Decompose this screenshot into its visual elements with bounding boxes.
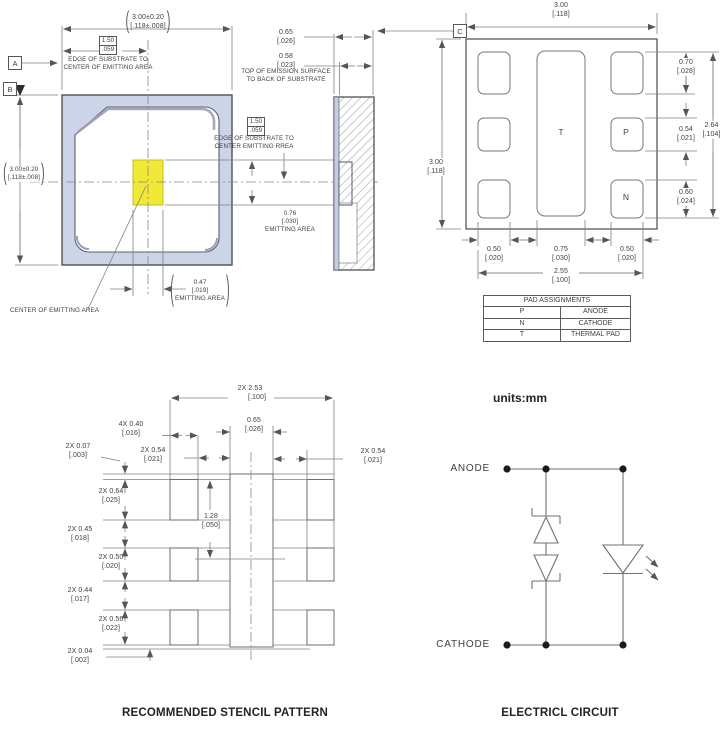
dim-stencil-offset-bottom: 2X 0.04[.002] xyxy=(54,647,106,665)
dim-emitting-height: 0.76[.030]EMITTING AREA xyxy=(262,210,318,235)
note-emission-surface: TOP OF EMISSION SURFACETO BACK OF SUBSTR… xyxy=(234,68,338,84)
stencil-aperture xyxy=(307,610,334,645)
dim-bottom-height: 3.00[.118] xyxy=(417,158,455,176)
datum-c: C xyxy=(453,24,467,38)
pad-assignments-table: PAD ASSIGNMENTS P ANODE N CATHODE T THER… xyxy=(483,295,631,342)
rails xyxy=(507,469,623,645)
dim-stencil-gap-left: 2X 0.54[.021] xyxy=(122,446,184,464)
dim-stencil-center-pitch: 1.28[.050] xyxy=(190,512,232,530)
caption-electrical-circuit: ELECTRICL CIRCUIT xyxy=(470,707,650,719)
caption-stencil-pattern: RECOMMENDED STENCIL PATTERN xyxy=(75,707,375,719)
anode-label: ANODE xyxy=(436,463,490,474)
dim-stencil-row3-height: 2X 0.56[.022] xyxy=(84,615,138,633)
stencil-aperture xyxy=(170,548,198,581)
dim-stencil-row2-height: 2X 0.50[.020] xyxy=(84,553,138,571)
dim-pad-center-width: 0.75[.030] xyxy=(544,245,578,263)
pad-left-top xyxy=(478,52,510,94)
junction-dots xyxy=(503,465,626,648)
datum-a: A xyxy=(8,56,22,70)
thermal-pad-label: T xyxy=(555,127,567,137)
dim-stencil-overall: 2X 2.53[.100] xyxy=(222,384,278,402)
dim-stencil-aperture-width: 4X 0.40[.016] xyxy=(100,420,162,438)
table-row: T THERMAL PAD xyxy=(484,330,631,341)
datasheet-drawing-page: .g{stroke:#54565b;stroke-width:1.3;fill:… xyxy=(0,0,727,731)
datum-b: B xyxy=(3,82,17,96)
note-edge-to-center-side: EDGE OF SUBSTRATE TOCENTER EMITTING RREA xyxy=(206,135,302,151)
light-emission-arrow xyxy=(646,556,658,567)
light-emission-arrow xyxy=(646,569,658,580)
dim-pad-mid-height: 0.54[.021] xyxy=(669,125,703,143)
dim-edge-to-center-boxed-side: 1.50 .059 xyxy=(240,117,272,136)
dim-pad-bottom-height: 0.60[.024] xyxy=(669,188,703,206)
dim-pad-right-width: 0.50[.020] xyxy=(610,245,644,263)
led-symbol xyxy=(603,545,658,580)
dim-package-height: ( 3.00±0.20[.118±.008] ) xyxy=(0,166,48,182)
units-note: units:mm xyxy=(470,391,570,405)
dim-edge-to-center-boxed: 1.50 .059 xyxy=(92,36,124,55)
cathode-label: CATHODE xyxy=(428,639,490,650)
dim-emitting-width: ( 0.47[.019]EMITTING AREA ) xyxy=(166,279,234,304)
stencil-aperture xyxy=(307,548,334,581)
anode-pad-label: P xyxy=(620,127,632,137)
dim-package-width: ( 3.00±0.20[.118±.008] ) xyxy=(112,13,184,31)
table-title: PAD ASSIGNMENTS xyxy=(484,296,631,307)
dim-pad-top-height: 0.70[.028] xyxy=(669,58,703,76)
dim-stencil-gap1: 2X 0.45[.018] xyxy=(54,525,106,543)
dim-stencil-gap2: 2X 0.44[.017] xyxy=(54,586,106,604)
table-row: P ANODE xyxy=(484,307,631,318)
dim-stencil-center-width: 0.65[.026] xyxy=(236,416,272,434)
stencil-aperture xyxy=(307,480,334,521)
dim-thickness: 0.65[.026] xyxy=(268,28,304,46)
table-row: N CATHODE xyxy=(484,318,631,329)
pad-left-mid xyxy=(478,118,510,151)
dim-stencil-row1-height: 2X 0.64[.025] xyxy=(84,487,138,505)
stencil-aperture xyxy=(170,610,198,645)
note-edge-to-center: EDGE OF SUBSTRATE TOCENTER OF EMITTING A… xyxy=(48,56,168,72)
dim-stencil-gap-right: 2X 0.54[.021] xyxy=(344,447,402,465)
cavity-section xyxy=(339,203,357,263)
dim-stencil-offset-top: 2X 0.07[.003] xyxy=(54,442,102,460)
cathode-pad-label: N xyxy=(620,192,632,202)
emission-surface-strip xyxy=(334,97,339,270)
pad-right-top xyxy=(611,52,643,94)
note-center-of-emitting-area: CENTER OF EMITTING AREA xyxy=(10,307,100,315)
dim-pad-left-width: 0.50[.020] xyxy=(477,245,511,263)
stencil-center-aperture xyxy=(230,474,273,647)
dim-pad-span-horizontal: 2.55[.100] xyxy=(543,267,579,285)
bottom-view-drawing xyxy=(436,13,719,279)
side-view-drawing xyxy=(304,30,453,270)
dim-bottom-width: 3.00[.118] xyxy=(539,1,583,19)
pad-left-bottom xyxy=(478,180,510,218)
circuit-drawing xyxy=(503,465,658,648)
